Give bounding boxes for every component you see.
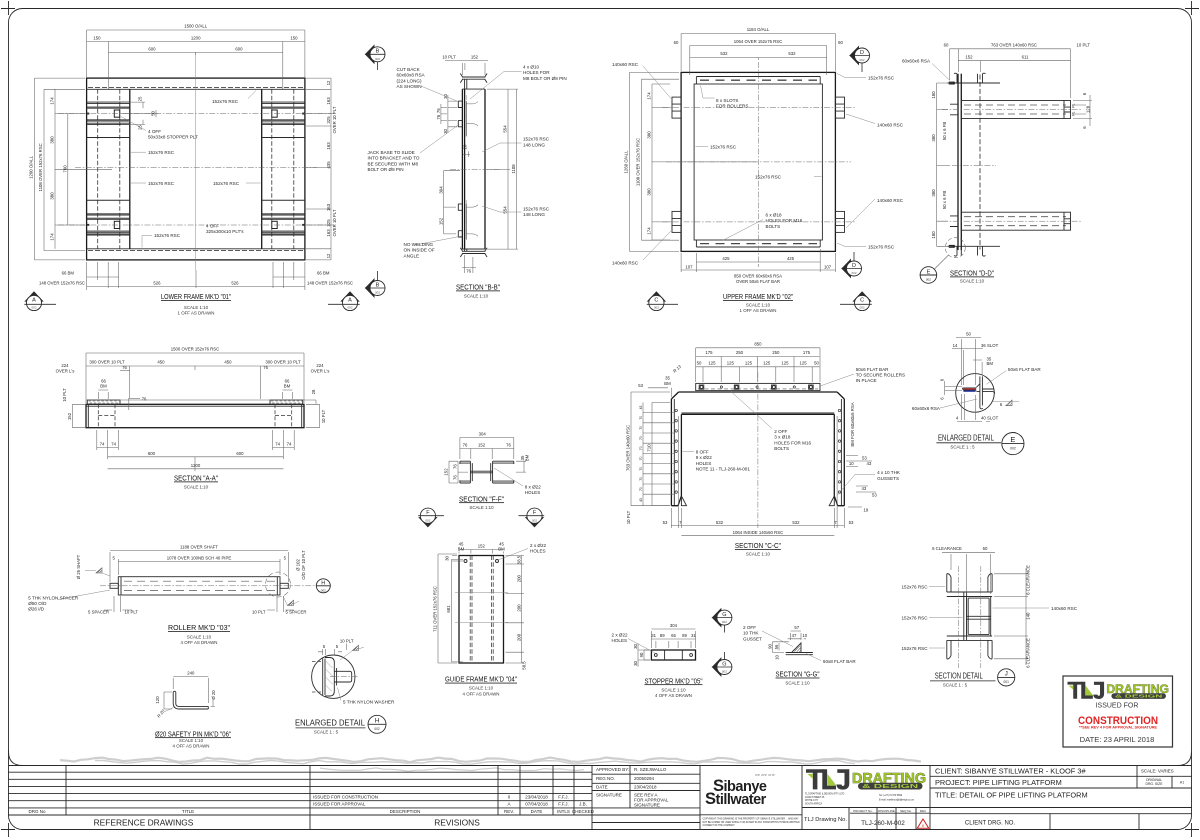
svg-text:SECTION "D-D": SECTION "D-D" [950,269,994,278]
svg-text:435: 435 [326,161,331,169]
svg-text:D: D [852,263,856,269]
svg-text:IN PLACE: IN PLACE [856,378,877,383]
svg-text:ISSUED FOR: ISSUED FOR [1096,703,1139,710]
svg-text:SEQ No.: SEQ No. [900,809,912,813]
svg-text:28: 28 [462,144,467,149]
svg-text:GUSSET: GUSSET [743,636,762,641]
svg-text:148 LONG: 148 LONG [523,142,545,147]
svg-text:HOLES FOR: HOLES FOR [523,70,550,75]
svg-text:INTO BRACKET AND TO: INTO BRACKET AND TO [368,156,420,161]
svg-text:70: 70 [639,416,643,420]
svg-text:58.5: 58.5 [522,661,527,670]
svg-text:57: 57 [794,625,799,630]
svg-text:763 OVER 140x60 RSC: 763 OVER 140x60 RSC [626,425,631,471]
svg-text:SECTION DETAIL: SECTION DETAIL [935,671,983,680]
svg-text:107: 107 [824,264,832,269]
svg-text:152x76 RSC: 152x76 RSC [148,181,175,186]
svg-text:DATE: 23 APRIL 2018: DATE: 23 APRIL 2018 [1080,735,1155,744]
svg-text:G: G [722,612,726,618]
svg-text:90: 90 [767,644,772,649]
svg-text:10: 10 [802,633,807,638]
svg-text:M8 BOLT OR Ø8 PIN: M8 BOLT OR Ø8 PIN [523,76,567,81]
svg-text:002: 002 [860,306,865,310]
svg-text:425: 425 [722,256,730,261]
svg-text:2 x Ø22: 2 x Ø22 [530,543,547,548]
svg-text:ISSUED FOR APPROVAL: ISSUED FOR APPROVAL [313,802,366,807]
svg-text:25: 25 [138,96,143,101]
svg-text:H: H [321,581,325,587]
svg-text:HOLES: HOLES [525,490,541,495]
svg-text:1108 OVER 152x76 RSC: 1108 OVER 152x76 RSC [636,138,641,186]
svg-text:152x76 RSC: 152x76 RSC [868,245,895,250]
svg-text:70: 70 [639,487,643,491]
svg-text:BM: BM [525,454,530,461]
svg-text:SCALE 1 : 5: SCALE 1 : 5 [943,683,968,688]
svg-text:140x60 RSC: 140x60 RSC [877,123,904,128]
svg-text:163: 163 [326,229,331,237]
svg-text:BM: BM [664,381,671,386]
svg-text:43: 43 [862,486,867,491]
svg-text:PROJECT No.: PROJECT No. [853,809,873,813]
svg-text:30: 30 [445,556,450,561]
svg-text:76: 76 [436,108,441,113]
svg-text:50: 50 [966,331,971,336]
svg-text:002: 002 [851,271,856,275]
svg-text:LOWER FRAME MK'D "01": LOWER FRAME MK'D "01" [161,292,231,301]
svg-text:ON INSIDE OF: ON INSIDE OF [404,248,435,253]
svg-text:554: 554 [503,125,508,133]
svg-text:10 PLT: 10 PLT [340,638,354,643]
svg-text:380: 380 [647,131,652,139]
svg-text:GUSSETS: GUSSETS [877,476,899,481]
svg-text:1108: 1108 [511,164,516,174]
svg-text:5 THK NYLON SPACER: 5 THK NYLON SPACER [28,595,79,600]
svg-text:REVISIONS: REVISIONS [434,818,480,828]
svg-text:60: 60 [983,546,988,551]
svg-text:23/04/2018: 23/04/2018 [634,785,657,790]
svg-text:200: 200 [516,633,521,641]
svg-text:30: 30 [633,661,638,666]
svg-text:E: E [927,269,931,275]
svg-text:152x76 RSC: 152x76 RSC [213,181,240,186]
svg-text:65: 65 [671,633,676,638]
svg-text:50x33x8 STOPPER PLT: 50x33x8 STOPPER PLT [148,135,198,140]
svg-text:A: A [348,297,352,303]
svg-text:GUIDE FRAME MK'D "04": GUIDE FRAME MK'D "04" [445,675,517,684]
svg-text:1200: 1200 [191,463,201,468]
svg-text:Ø26 I/D: Ø26 I/D [28,607,45,612]
svg-text:35: 35 [665,376,670,381]
svg-text:125: 125 [781,360,789,365]
svg-text:526: 526 [153,280,161,285]
svg-text:60: 60 [944,42,949,47]
svg-text:60x60x8 RSA: 60x60x8 RSA [397,73,426,78]
svg-text:58.5: 58.5 [516,555,521,564]
svg-text:10 THK: 10 THK [743,631,759,636]
svg-text:BM: BM [100,384,107,389]
svg-text:SECTION "F-F": SECTION "F-F" [459,494,504,503]
svg-text:76: 76 [463,442,468,447]
svg-text:E-mail: marthinus@tljdesign.co: E-mail: marthinus@tljdesign.co.za [879,799,914,802]
svg-text:PL: PL [1072,111,1076,115]
svg-text:152: 152 [965,55,973,60]
svg-text:152x76 RSC: 152x76 RSC [523,207,550,212]
svg-text:WHITE CITY: WHITE CITY [805,800,819,802]
svg-text:5 THK NYLON WASHER: 5 THK NYLON WASHER [343,699,395,704]
svg-text:002: 002 [722,670,727,674]
svg-text:711 OVER 152x76 RSC: 711 OVER 152x76 RSC [433,586,438,632]
svg-text:40 SLOT: 40 SLOT [981,415,999,420]
svg-text:10 PLT: 10 PLT [1077,42,1091,47]
svg-text:F.F.J.: F.F.J. [558,794,569,799]
svg-text:Tel: (+27) 72 679 5699: Tel: (+27) 72 679 5699 [879,795,903,797]
svg-text:DRG. SIZE: DRG. SIZE [1146,782,1164,786]
svg-text:43: 43 [639,498,643,502]
svg-text:43: 43 [867,461,872,466]
svg-text:50x6 FLAT BAR: 50x6 FLAT BAR [856,367,889,372]
svg-text:174: 174 [647,227,652,235]
svg-text:BM: BM [987,361,994,366]
svg-text:we are one: we are one [755,772,776,777]
svg-text:J: J [1005,671,1008,678]
svg-text:ENLARGED DETAIL: ENLARGED DETAIL [938,433,994,442]
svg-text:20050294: 20050294 [634,776,655,781]
svg-text:152: 152 [439,217,444,225]
svg-text:SCALE 1:10: SCALE 1:10 [469,686,494,691]
svg-text:G: G [722,661,726,667]
svg-text:56: 56 [774,644,779,649]
svg-text:002: 002 [1010,447,1016,451]
svg-text:325: 325 [326,219,331,227]
svg-text:SOUTH AFRICA: SOUTH AFRICA [805,802,822,805]
svg-text:HOLES: HOLES [612,638,628,643]
svg-text:OVER 10 PLT: OVER 10 PLT [332,106,337,133]
svg-text:TITLE: TITLE [182,809,194,814]
svg-text:450: 450 [224,360,232,365]
svg-text:STOPPER MK'D "05": STOPPER MK'D "05" [645,676,703,685]
svg-text:10 PLT: 10 PLT [626,510,631,524]
svg-text:47: 47 [792,633,797,638]
svg-text:002: 002 [374,727,380,731]
svg-text:NOT BE COPIED OR USED WHOLLY O: NOT BE COPIED OR USED WHOLLY OR IN PART … [703,821,800,824]
svg-text:NOTE 11 - TLJ-260-M-001: NOTE 11 - TLJ-260-M-001 [696,467,751,472]
svg-text:10 PLT: 10 PLT [62,388,67,402]
svg-text:152x76 RSC: 152x76 RSC [755,175,782,180]
svg-text:76: 76 [122,365,127,370]
svg-text:002: 002 [321,589,326,593]
svg-text:25: 25 [138,125,143,130]
svg-text:53: 53 [663,520,668,525]
svg-text:A: A [507,802,510,807]
svg-text:425: 425 [787,256,795,261]
svg-text:2 OFF: 2 OFF [743,625,756,630]
svg-text:R. SZEJWALLO: R. SZEJWALLO [634,767,667,772]
svg-text:1500 OVER 152x76 RSC: 1500 OVER 152x76 RSC [171,347,220,352]
svg-text:36 SLOT: 36 SLOT [981,343,999,348]
svg-text:70: 70 [639,477,643,481]
svg-text:4 OFF AS DRAWN: 4 OFF AS DRAWN [463,691,500,696]
svg-text:163: 163 [326,203,331,211]
svg-text:TLJ Drawing No.: TLJ Drawing No. [804,817,847,823]
svg-text:250: 250 [772,350,780,355]
svg-text:C: C [654,297,658,303]
svg-text:600: 600 [236,451,244,456]
svg-text:152: 152 [478,544,486,549]
svg-text:174: 174 [647,92,652,100]
svg-text:BM: BM [284,384,291,389]
svg-text:FOR ROLLERS: FOR ROLLERS [716,104,748,109]
svg-text:Ø 20: Ø 20 [211,690,216,700]
svg-text:002: 002 [375,291,380,295]
svg-text:10: 10 [849,461,854,466]
svg-text:NO WELDING: NO WELDING [404,242,434,247]
svg-text:180: 180 [931,91,936,99]
svg-text:304: 304 [670,623,678,628]
svg-text:43: 43 [639,406,643,410]
svg-text:A: A [32,297,36,303]
svg-text:SCALE 1:10: SCALE 1:10 [746,303,771,308]
svg-text:002: 002 [722,620,727,624]
svg-text:BOLT OR Ø8 PIN: BOLT OR Ø8 PIN [368,167,404,172]
svg-text:TO SECURE ROLLERS: TO SECURE ROLLERS [856,373,905,378]
svg-text:DESCRIPTION: DESCRIPTION [390,809,421,814]
svg-text:8 OFF: 8 OFF [696,450,709,455]
svg-text:380: 380 [647,188,652,196]
svg-text:152x76 RSC: 152x76 RSC [212,99,239,104]
svg-text:532: 532 [788,51,796,56]
svg-text:SCALE 1:10: SCALE 1:10 [464,294,489,299]
svg-text:150: 150 [93,35,101,40]
svg-text:002: 002 [859,58,864,62]
svg-text:1188 OVER SHAFT: 1188 OVER SHAFT [180,544,218,549]
svg-text:10 PLT: 10 PLT [252,610,266,615]
svg-text:50 x 6 FB: 50 x 6 FB [942,191,947,210]
svg-text:12: 12 [326,80,331,85]
svg-text:76: 76 [466,268,471,273]
svg-text:5 SPACER: 5 SPACER [286,610,307,615]
svg-text:2 OFF: 2 OFF [774,429,787,434]
svg-text:600: 600 [148,46,156,51]
svg-text:10 PLT: 10 PLT [125,610,139,615]
svg-text:SCALE: VARIES: SCALE: VARIES [1141,769,1174,774]
svg-text:60x60x6 RSA: 60x60x6 RSA [902,59,931,64]
svg-text:76: 76 [142,396,147,401]
svg-text:CHECKED: CHECKED [572,809,595,814]
svg-text:SECTION "C-C": SECTION "C-C" [735,541,781,550]
svg-text:CLIENT: SIBANYE STILLWATER -: CLIENT: SIBANYE STILLWATER - KLOOF 3# [935,767,1086,776]
svg-text:SCALE 1:10: SCALE 1:10 [661,687,686,692]
svg-text:140x60 RSC: 140x60 RSC [1051,606,1078,611]
svg-text:1184 O/ALL: 1184 O/ALL [747,27,770,32]
svg-text:5 SPACER: 5 SPACER [88,610,109,615]
svg-text:28: 28 [311,389,316,394]
svg-text:66: 66 [101,378,106,383]
svg-text:H: H [375,718,380,725]
svg-text:002: 002 [532,518,537,522]
svg-text:INTLS: INTLS [557,809,570,814]
svg-text:8 x Ø22: 8 x Ø22 [525,484,542,489]
svg-text:532: 532 [716,520,724,525]
svg-text:2 x Ø22: 2 x Ø22 [612,632,629,637]
svg-text:174: 174 [50,97,55,105]
svg-text:9 x Ø22: 9 x Ø22 [696,455,713,460]
svg-text:4 OFF: 4 OFF [148,129,161,134]
svg-text:4 OFF: 4 OFF [206,223,219,228]
svg-text:REFERENCE DRAWINGS: REFERENCE DRAWINGS [94,818,194,828]
svg-text:4 OFF AS DRAWN: 4 OFF AS DRAWN [181,640,218,645]
svg-text:Ø 25 SHAFT: Ø 25 SHAFT [76,554,81,579]
svg-text:SECTION "A-A": SECTION "A-A" [174,474,218,483]
svg-text:70: 70 [639,446,643,450]
svg-text:B: B [376,49,380,55]
svg-text:10: 10 [775,655,780,660]
svg-text:180: 180 [931,231,936,239]
svg-text:89: 89 [660,633,665,638]
svg-text:OVER 10 PLT: OVER 10 PLT [332,209,337,236]
svg-text:SCALE 1 : 5: SCALE 1 : 5 [314,730,339,735]
svg-text:TLJ DRAFTING & DESIGN (PTY) LT: TLJ DRAFTING & DESIGN (PTY) LTD [805,793,845,796]
svg-text:380: 380 [931,134,936,142]
svg-text:125: 125 [800,360,808,365]
svg-text:554: 554 [503,206,508,214]
svg-text:23/04/2018: 23/04/2018 [525,794,548,799]
svg-text:163: 163 [326,97,331,105]
svg-text:PL: PL [1072,103,1076,107]
svg-text:**SEE REV 4 FOR APPROVAL SIGNA: **SEE REV 4 FOR APPROVAL SIGNATURE [1079,726,1158,730]
svg-text:70: 70 [639,426,643,430]
svg-text:120: 120 [155,696,160,704]
svg-text:JACK BASE TO SLIDE: JACK BASE TO SLIDE [368,150,415,155]
svg-text:TITLE: DETAIL OF PIPE LIFTING: TITLE: DETAIL OF PIPE LIFTING PLATFORM [935,791,1088,800]
svg-text:DATE: DATE [531,809,543,814]
svg-text:70: 70 [639,436,643,440]
svg-text:53: 53 [849,520,854,525]
svg-text:611: 611 [1022,55,1029,60]
svg-text:SCALE 1:10: SCALE 1:10 [184,305,209,310]
svg-text:OVER L's: OVER L's [56,369,75,374]
svg-text:380: 380 [50,136,55,144]
svg-text:REV.: REV. [504,809,514,814]
svg-text:F.F.J.: F.F.J. [558,802,569,807]
svg-text:1 OFF AS DRAWN: 1 OFF AS DRAWN [740,308,777,313]
svg-text:200: 200 [516,604,521,612]
svg-text:760: 760 [62,165,67,173]
svg-text:224: 224 [316,363,324,368]
svg-text:10 PLT: 10 PLT [442,55,456,60]
svg-text:76: 76 [506,442,511,447]
svg-text:148 LONG: 148 LONG [523,212,545,217]
svg-text:6 CLEARANCE: 6 CLEARANCE [1026,565,1031,595]
svg-text:HOLES FOR M16: HOLES FOR M16 [766,218,803,223]
svg-text:850 OVER 60x60x6 RSA: 850 OVER 60x60x6 RSA [734,274,782,279]
svg-text:152x76 RSC: 152x76 RSC [902,616,929,621]
svg-text:125: 125 [708,360,716,365]
svg-text:710: 710 [647,444,652,452]
svg-text:CONSENT OF THE COMPANY: CONSENT OF THE COMPANY [703,824,736,827]
svg-text:250: 250 [736,350,744,355]
svg-text:HOLES: HOLES [696,461,712,466]
svg-text:1200: 1200 [191,35,201,40]
svg-text:681: 681 [446,605,451,613]
svg-text:1064 OVER 152x76 RSC: 1064 OVER 152x76 RSC [734,39,783,44]
svg-text:600: 600 [148,451,156,456]
svg-text:OVER 50x6 FLAT BAR: OVER 50x6 FLAT BAR [736,279,780,284]
svg-text:89: 89 [682,633,687,638]
svg-text:BOLTS: BOLTS [766,224,781,229]
svg-text:BM: BM [498,546,505,551]
svg-text:66: 66 [285,378,290,383]
svg-text:1108 OVER 152x76 RSC: 1108 OVER 152x76 RSC [38,143,43,191]
svg-text:325x300x10 PLT's: 325x300x10 PLT's [206,229,244,234]
svg-text:DATE: DATE [596,785,608,790]
svg-text:304: 304 [479,431,487,436]
svg-text:8 x SLOTS: 8 x SLOTS [716,98,738,103]
svg-text:002: 002 [654,306,659,310]
svg-text:200: 200 [516,575,521,583]
svg-text:380: 380 [931,189,936,197]
svg-text:REG NO.: REG NO. [596,776,615,781]
svg-text:60x60x6 RSA: 60x60x6 RSA [912,406,941,411]
svg-text:SCALE 1 : 5: SCALE 1 : 5 [950,445,975,450]
svg-text:152: 152 [471,55,479,60]
svg-text:SCALE 1:10: SCALE 1:10 [960,279,985,284]
svg-text:19: 19 [864,508,869,513]
svg-text:3 x Ø18: 3 x Ø18 [774,435,791,440]
svg-text:90: 90 [639,652,644,657]
svg-text:66 BM: 66 BM [62,271,75,276]
svg-text:002: 002 [375,57,380,61]
svg-text:12: 12 [326,253,331,258]
svg-text:152x76 RSC: 152x76 RSC [902,646,929,651]
svg-text:53: 53 [862,456,867,461]
svg-text:BM FOR 60x60x6 RSA: BM FOR 60x60x6 RSA [850,402,855,446]
svg-text:74: 74 [275,442,280,447]
svg-text:UPPER FRAME MK'D "02": UPPER FRAME MK'D "02" [723,292,793,301]
svg-text:BOLTS: BOLTS [774,446,789,451]
svg-text:76: 76 [436,114,441,119]
svg-text:152: 152 [444,468,449,476]
svg-text:1260 O/ALL: 1260 O/ALL [624,150,629,174]
svg-text:50: 50 [697,360,702,365]
svg-text:1064 INSIDE 140x60 RSC: 1064 INSIDE 140x60 RSC [733,530,784,535]
svg-text:002: 002 [926,277,931,281]
svg-text:SIGNATURE: SIGNATURE [634,803,660,808]
svg-text:66 BM: 66 BM [317,271,330,276]
svg-text:D: D [860,50,864,56]
svg-text:ANGLE: ANGLE [404,253,420,258]
svg-text:163: 163 [326,142,331,150]
svg-text:4 OFF AS DRAWN: 4 OFF AS DRAWN [173,744,210,749]
svg-text:74: 74 [111,442,116,447]
svg-text:174: 174 [50,233,55,241]
svg-text:SCALE 1:10: SCALE 1:10 [187,634,212,639]
svg-text:A1: A1 [1180,781,1184,785]
svg-text:APPROVED BY:: APPROVED BY: [596,767,629,772]
svg-text:SCALE 1:10: SCALE 1:10 [184,485,209,490]
svg-text:53: 53 [872,492,877,497]
svg-text:TLJ-260-M-002: TLJ-260-M-002 [861,820,905,827]
svg-text:175: 175 [803,350,811,355]
svg-text:76: 76 [453,464,458,469]
svg-text:002: 002 [31,306,36,310]
svg-text:325: 325 [326,116,331,124]
svg-text:31: 31 [651,633,656,638]
svg-text:152x76 RSC: 152x76 RSC [148,150,175,155]
svg-text:140x60 RSC: 140x60 RSC [612,62,639,67]
svg-text:1260 O/ALL: 1260 O/ALL [29,155,34,179]
svg-text:140x60 RSC: 140x60 RSC [612,261,639,266]
svg-text:ENLARGED DETAIL: ENLARGED DETAIL [295,718,365,727]
